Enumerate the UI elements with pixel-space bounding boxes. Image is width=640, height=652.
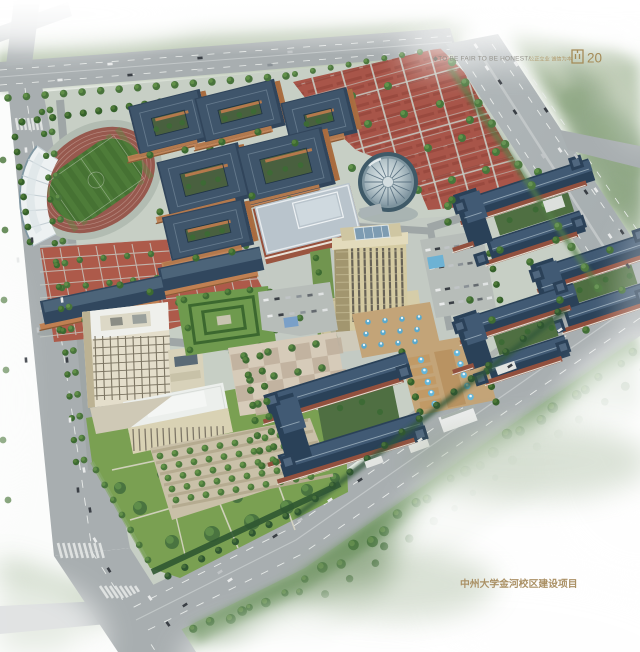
svg-text:20: 20 bbox=[587, 51, 602, 66]
svg-text:◆TO BE FAIR TO BE HONEST/: ◆TO BE FAIR TO BE HONEST/ bbox=[433, 56, 530, 63]
svg-text:公正立业 诚信为本: 公正立业 诚信为本 bbox=[529, 55, 572, 63]
svg-text:中州大学金河校区建设项目: 中州大学金河校区建设项目 bbox=[460, 577, 578, 590]
